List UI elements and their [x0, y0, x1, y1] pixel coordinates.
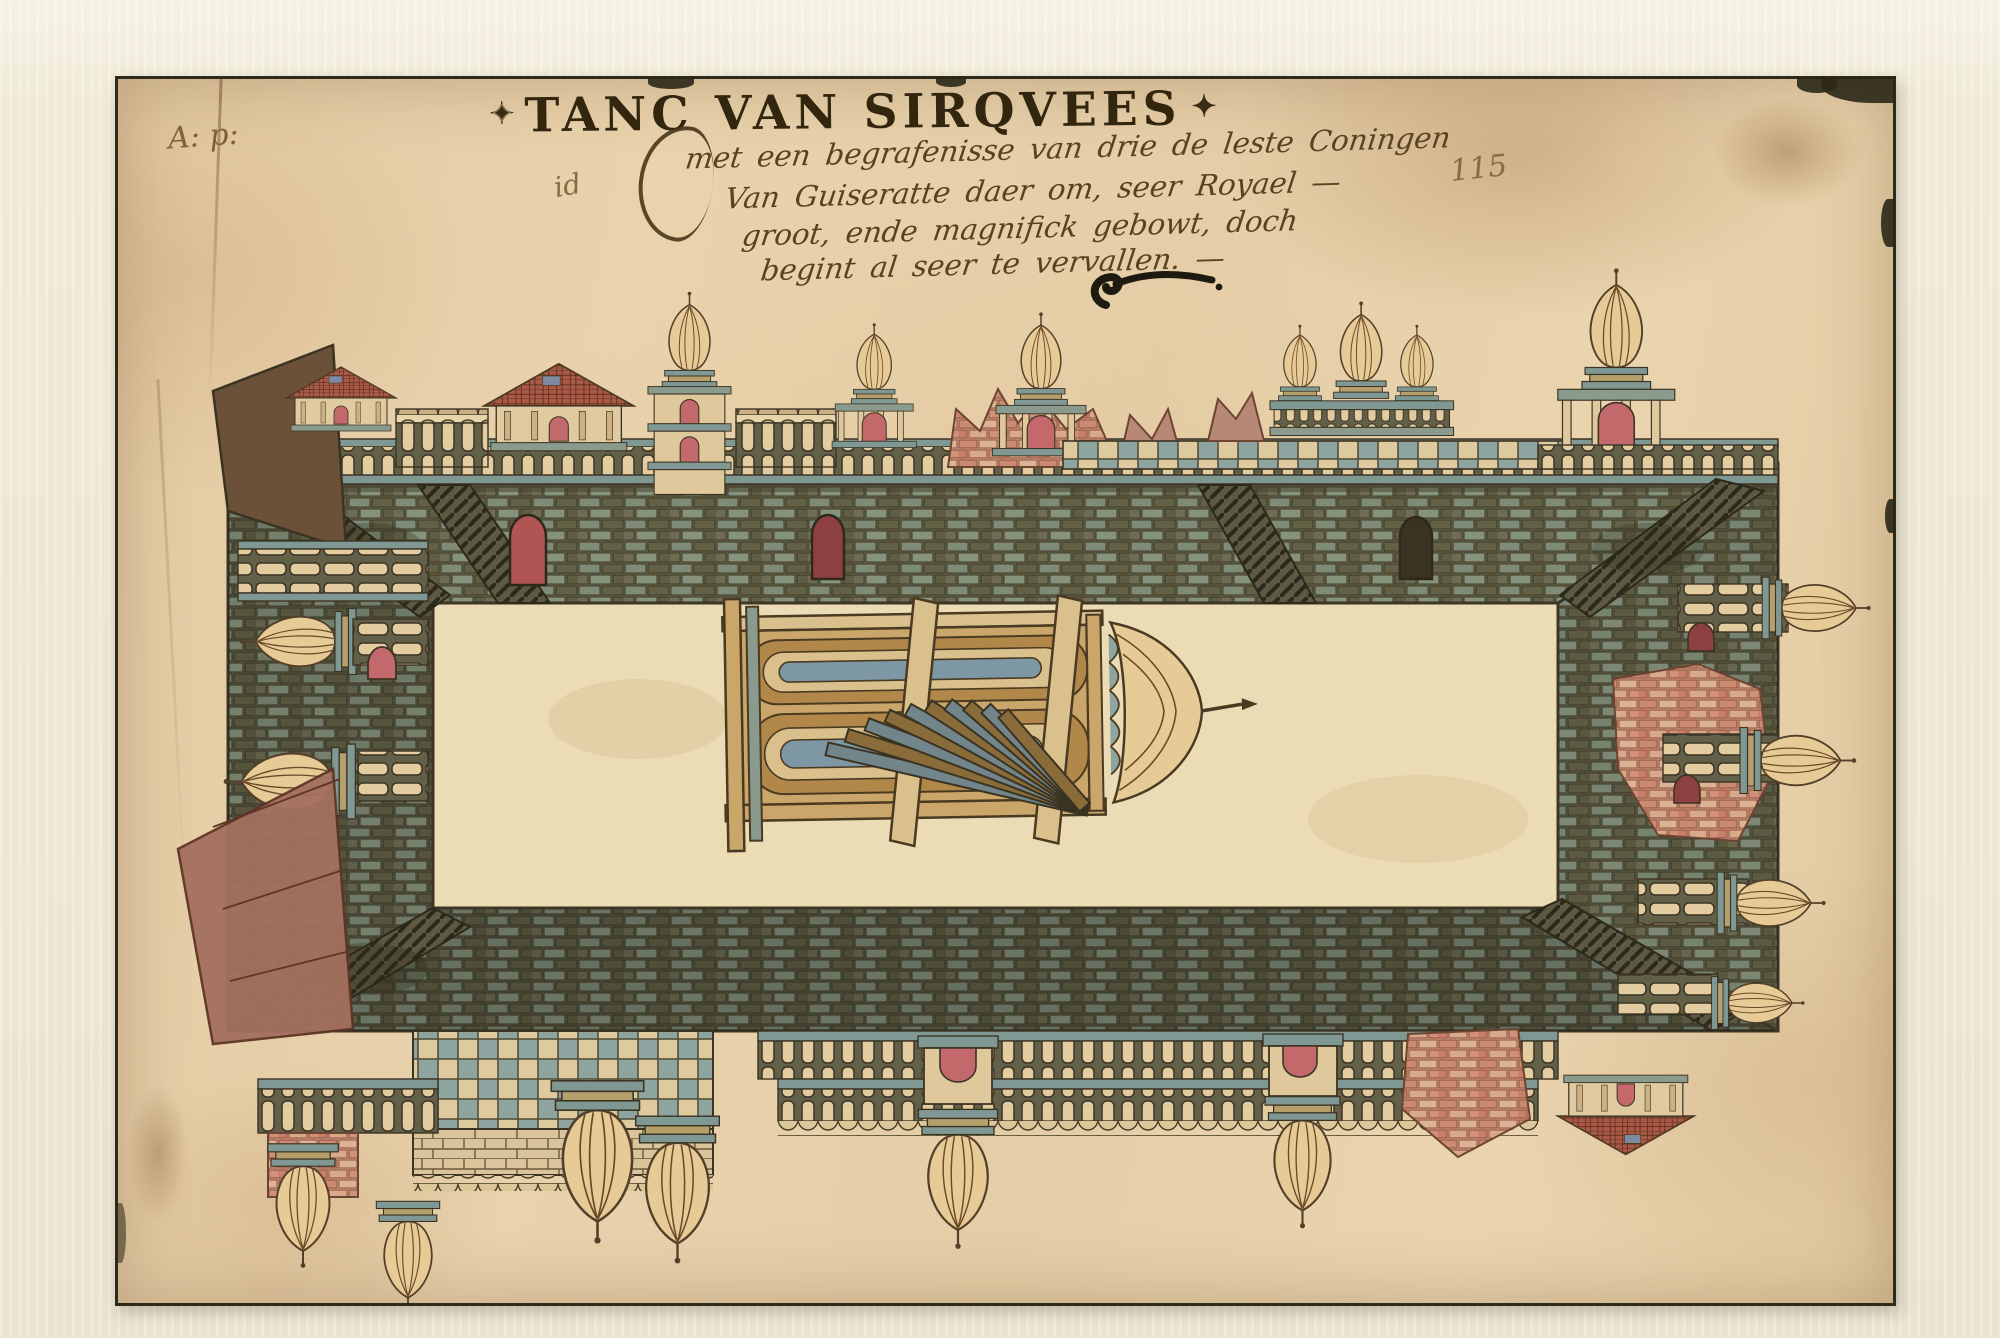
title-ornament-right: ✦	[1181, 89, 1227, 124]
manuscript-sheet: A: p: ✦TANC VAN SIRQVEES✦ met een begraf…	[115, 76, 1896, 1306]
photo-backdrop: A: p: ✦TANC VAN SIRQVEES✦ met een begraf…	[0, 0, 2000, 1338]
title-ornament-left: ✦	[479, 96, 525, 131]
folio-number: 115	[1448, 148, 1509, 189]
margin-mark: id	[551, 167, 583, 204]
bottom-skyline-inverted	[258, 1029, 1694, 1303]
collection-mark: A: p:	[167, 117, 240, 157]
ink-flourish	[1086, 265, 1226, 315]
